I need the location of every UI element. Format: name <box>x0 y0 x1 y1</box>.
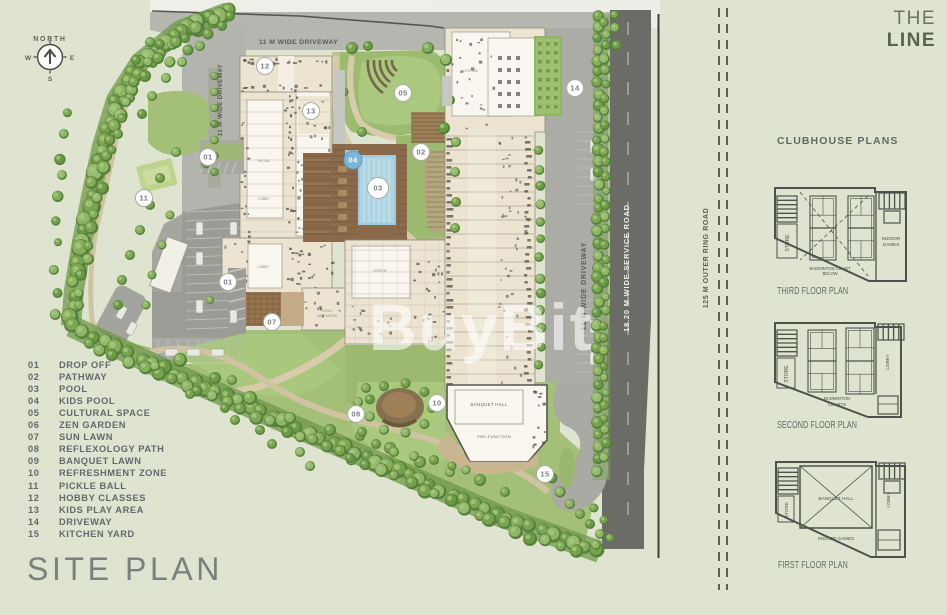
svg-text:INDOOR: INDOOR <box>882 236 901 241</box>
svg-text:15: 15 <box>540 470 549 479</box>
svg-text:CRECHE: CRECHE <box>373 269 388 273</box>
svg-text:STORE: STORE <box>784 502 789 518</box>
svg-text:07: 07 <box>267 318 276 327</box>
svg-text:04: 04 <box>348 156 358 165</box>
svg-text:02: 02 <box>416 148 425 157</box>
svg-text:18.20 M WIDE SERVICE ROAD: 18.20 M WIDE SERVICE ROAD <box>622 204 631 332</box>
svg-text:NORTH: NORTH <box>33 36 66 43</box>
svg-text:08: 08 <box>351 410 360 419</box>
svg-text:BANQUET HALL: BANQUET HALL <box>471 402 508 407</box>
svg-text:13: 13 <box>306 107 315 116</box>
svg-text:BELOW: BELOW <box>822 271 837 276</box>
svg-text:12: 12 <box>260 62 269 71</box>
svg-text:STORE: STORE <box>784 365 790 383</box>
svg-text:10: 10 <box>432 399 441 408</box>
svg-text:YOGA /: YOGA / <box>321 309 332 313</box>
svg-text:LOBBY: LOBBY <box>257 265 269 269</box>
svg-text:05: 05 <box>398 89 407 98</box>
svg-text:STORE: STORE <box>785 234 791 252</box>
svg-text:PRE-FUNCTION: PRE-FUNCTION <box>477 434 511 439</box>
svg-text:125 M OUTER RING ROAD: 125 M OUTER RING ROAD <box>703 208 710 309</box>
svg-text:INDOOR GAMES: INDOOR GAMES <box>818 536 854 541</box>
svg-text:GAMES: GAMES <box>883 242 900 247</box>
svg-text:LOBBY: LOBBY <box>258 197 270 201</box>
svg-text:LOBBY: LOBBY <box>886 492 891 507</box>
svg-text:BANQUET HALL: BANQUET HALL <box>819 496 854 501</box>
svg-text:KITCHEN: KITCHEN <box>463 69 478 73</box>
svg-text:11: 11 <box>140 194 149 203</box>
svg-text:14: 14 <box>570 84 580 93</box>
svg-text:03: 03 <box>373 184 382 193</box>
svg-text:BuyBit: BuyBit <box>369 290 594 364</box>
svg-text:E: E <box>70 55 75 62</box>
svg-text:BADMINTON: BADMINTON <box>824 396 850 401</box>
svg-text:11 M WIDE DRIVEWAY: 11 M WIDE DRIVEWAY <box>259 39 338 46</box>
svg-text:S: S <box>48 76 53 83</box>
svg-text:MEDITATION: MEDITATION <box>317 314 337 318</box>
svg-text:01: 01 <box>203 153 212 162</box>
svg-text:01: 01 <box>223 278 232 287</box>
svg-text:W: W <box>25 55 32 62</box>
svg-text:11 M WIDE DRIVEWAY: 11 M WIDE DRIVEWAY <box>218 64 224 136</box>
svg-text:RETAIL: RETAIL <box>258 159 270 163</box>
svg-text:COURTS: COURTS <box>828 402 847 407</box>
svg-text:LOBBY: LOBBY <box>885 354 890 369</box>
